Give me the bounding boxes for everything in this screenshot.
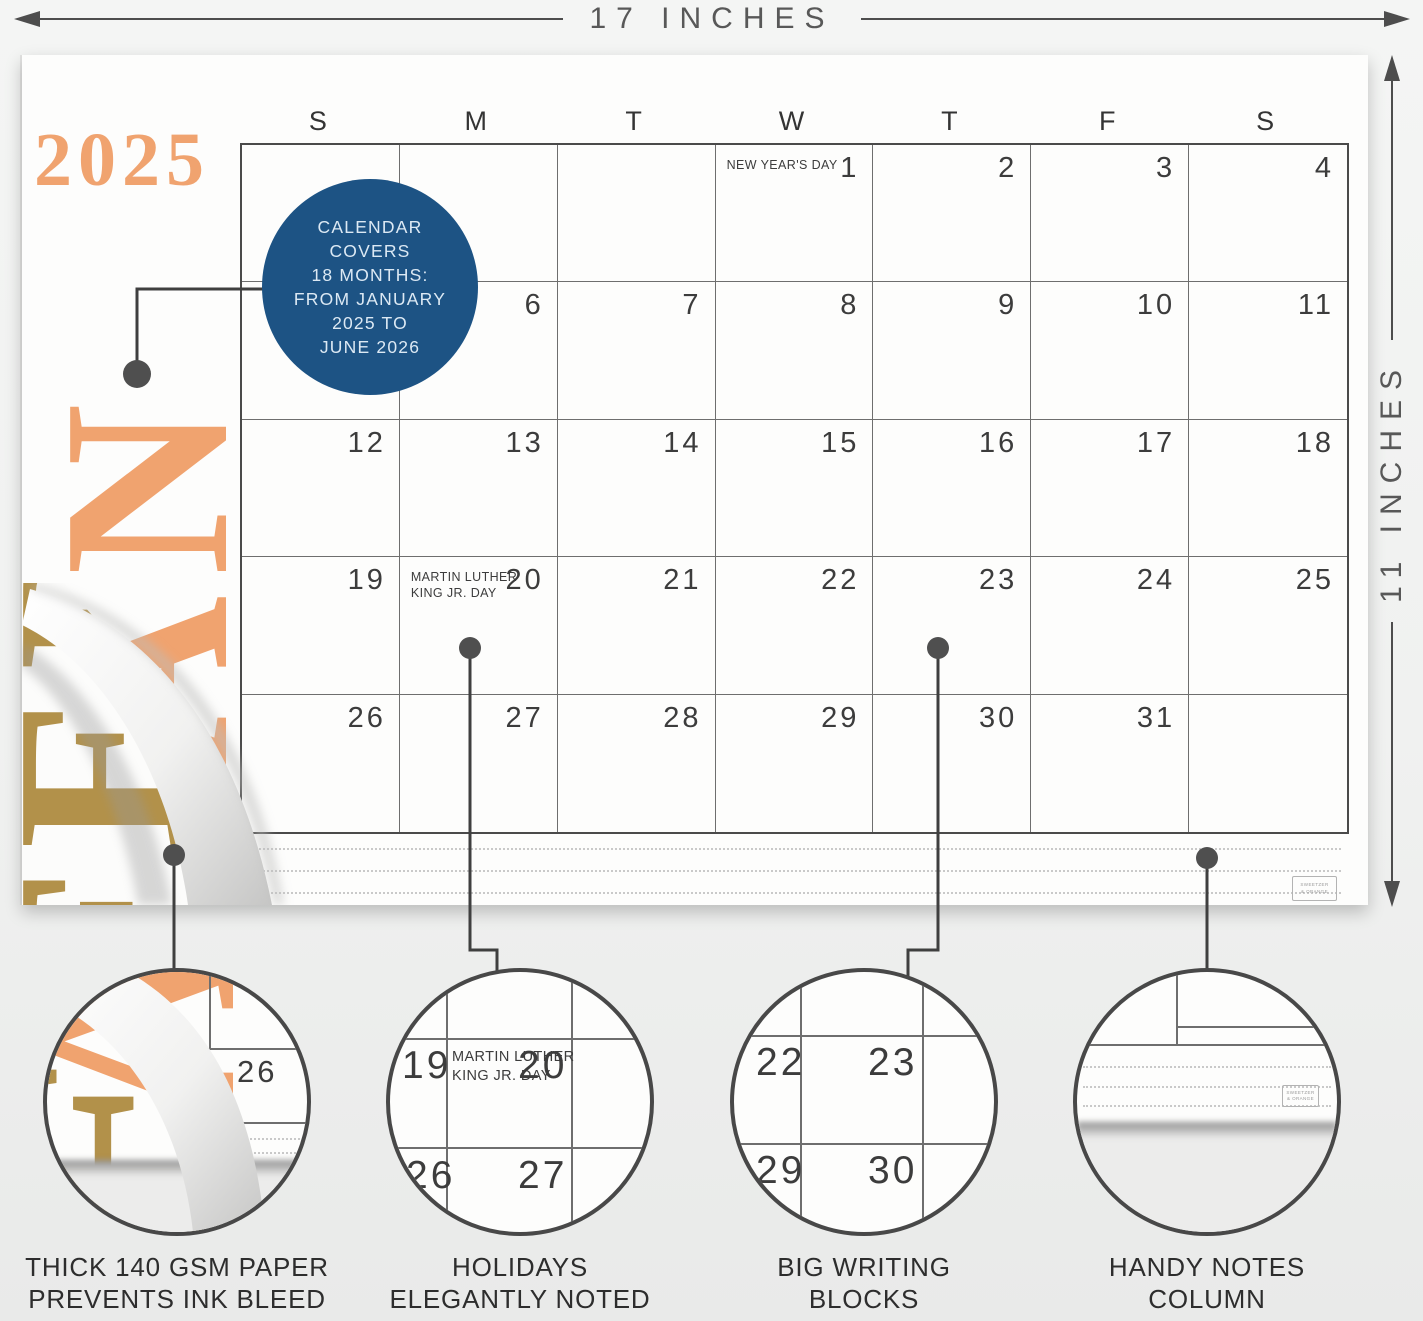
dimension-line <box>1391 622 1394 881</box>
date-number: 14 <box>663 427 701 460</box>
weekday-header: S <box>1187 99 1345 141</box>
day-cell: MARTIN LUTHER KING JR. DAY20 <box>400 557 558 694</box>
date-number: 30 <box>979 702 1017 735</box>
inset-writing-blocks-closeup: 22 23 29 30 <box>730 968 998 1236</box>
day-cell: 14 <box>558 420 716 557</box>
day-cell: 15 <box>716 420 874 557</box>
calendar-page: 2025 SMTWTFS NEW YEAR'S DAY1234567891011… <box>22 55 1368 905</box>
date-number: 1 <box>840 152 859 185</box>
dimension-line <box>861 18 1384 21</box>
page-curl <box>47 972 307 1232</box>
grid-line <box>1077 1044 1337 1046</box>
day-cell: 27 <box>400 695 558 832</box>
notes-rule-line <box>244 870 1341 872</box>
date-number: 22 <box>756 1041 805 1085</box>
brand-logo-text: & ORANGE <box>1301 889 1328 895</box>
day-cell: 11 <box>1189 282 1347 419</box>
grid-line <box>571 972 573 1232</box>
caption-line: COLUMN <box>1037 1284 1377 1316</box>
day-cell: 23 <box>873 557 1031 694</box>
height-dimension-label: 11 INCHES <box>1375 360 1409 603</box>
arrow-right-icon <box>1384 11 1410 27</box>
weekday-header: W <box>714 99 872 141</box>
date-number: 20 <box>505 564 543 597</box>
weekday-header: F <box>1029 99 1187 141</box>
day-cell: 22 <box>716 557 874 694</box>
day-cell: 13 <box>400 420 558 557</box>
grid-line <box>1325 1026 1327 1044</box>
caption-line: BLOCKS <box>694 1284 1034 1316</box>
date-number: 26 <box>406 1154 455 1198</box>
date-number: 23 <box>868 1041 917 1085</box>
desk-surface <box>1077 1132 1337 1232</box>
grid-line <box>390 1147 650 1149</box>
date-number: 6 <box>525 289 544 322</box>
date-number: 11 <box>1298 289 1334 322</box>
date-number: 29 <box>756 1149 805 1193</box>
callout-text-line: 2025 TO <box>332 311 408 335</box>
date-number: 20 <box>518 1044 567 1088</box>
date-number: 31 <box>1137 702 1175 735</box>
day-cell: 17 <box>1031 420 1189 557</box>
caption-line: HOLIDAYS <box>350 1252 690 1284</box>
date-number: 28 <box>663 702 701 735</box>
date-number: 13 <box>505 427 543 460</box>
weekday-header: T <box>556 99 714 141</box>
day-cell: 18 <box>1189 420 1347 557</box>
weekday-header: T <box>871 99 1029 141</box>
callout-text-line: FROM JANUARY <box>294 287 446 311</box>
date-number: 3 <box>1156 152 1175 185</box>
day-cell: 9 <box>873 282 1031 419</box>
caption-line: ELEGANTLY NOTED <box>350 1284 690 1316</box>
grid-line <box>1176 1026 1325 1028</box>
holiday-label: NEW YEAR'S DAY <box>727 157 838 173</box>
day-cell: 29 <box>716 695 874 832</box>
arrow-up-icon <box>1384 55 1400 81</box>
date-number: 18 <box>1296 427 1334 460</box>
height-dimension: 11 INCHES <box>1372 55 1412 907</box>
caption-line: BIG WRITING <box>694 1252 1034 1284</box>
width-dimension-label: 17 INCHES <box>589 2 834 36</box>
year-label: 2025 <box>34 117 210 204</box>
date-number: 19 <box>348 564 386 597</box>
date-number: 4 <box>1315 152 1334 185</box>
weekday-header: S <box>240 99 398 141</box>
inset-caption: BIG WRITING BLOCKS <box>694 1252 1034 1315</box>
brand-logo-text: & ORANGE <box>1287 1096 1314 1102</box>
date-number: 2 <box>998 152 1017 185</box>
day-cell: 8 <box>716 282 874 419</box>
arrow-down-icon <box>1384 881 1400 907</box>
inset-holidays-closeup: 19 MARTIN LUTHER KING JR. DAY 20 26 27 <box>386 968 654 1236</box>
inset-paper-closeup: A E 26 <box>43 968 311 1236</box>
date-number: 22 <box>821 564 859 597</box>
callout-text-line: COVERS <box>329 239 410 263</box>
dimension-line <box>1391 81 1394 340</box>
day-cell: 21 <box>558 557 716 694</box>
day-cell: 4 <box>1189 145 1347 282</box>
page-curl <box>22 583 332 905</box>
grid-line <box>800 972 802 1232</box>
date-number: 29 <box>821 702 859 735</box>
day-cell: 3 <box>1031 145 1189 282</box>
callout-text-line: JUNE 2026 <box>320 335 420 359</box>
date-number: 8 <box>840 289 859 322</box>
day-cell: 16 <box>873 420 1031 557</box>
brand-logo: SWEETZER & ORANGE <box>1282 1085 1319 1107</box>
date-number: 12 <box>348 427 386 460</box>
width-dimension: 17 INCHES <box>14 0 1410 38</box>
day-cell: 30 <box>873 695 1031 832</box>
date-number: 30 <box>868 1149 917 1193</box>
notes-section: SWEETZER & ORANGE <box>240 830 1345 905</box>
page-shadow <box>1077 1122 1337 1137</box>
date-number: 23 <box>979 564 1017 597</box>
date-number: 9 <box>998 289 1017 322</box>
grid-line <box>734 1143 994 1145</box>
holiday-label: MARTIN LUTHER KING JR. DAY <box>411 569 517 602</box>
inset-notes-closeup: SWEETZER & ORANGE <box>1073 968 1341 1236</box>
weekday-header: M <box>398 99 556 141</box>
info-callout-bubble: CALENDAR COVERS 18 MONTHS: FROM JANUARY … <box>262 179 478 395</box>
day-cell: 24 <box>1031 557 1189 694</box>
day-cell: NEW YEAR'S DAY1 <box>716 145 874 282</box>
dimension-line <box>40 18 563 21</box>
date-number: 17 <box>1137 427 1175 460</box>
date-number: 16 <box>979 427 1017 460</box>
date-number: 27 <box>505 702 543 735</box>
day-cell <box>558 145 716 282</box>
brand-logo: SWEETZER & ORANGE <box>1292 876 1337 901</box>
notes-rule-line <box>1083 1066 1331 1068</box>
day-cell: 31 <box>1031 695 1189 832</box>
date-number: 27 <box>518 1154 567 1198</box>
date-number: 26 <box>348 702 386 735</box>
grid-line <box>922 972 924 1232</box>
weekday-header-row: SMTWTFS <box>240 99 1345 141</box>
date-number: 21 <box>663 564 701 597</box>
caption-line: HANDY NOTES <box>1037 1252 1377 1284</box>
caption-line: PREVENTS INK BLEED <box>7 1284 347 1316</box>
grid-line <box>734 1035 994 1037</box>
notes-rule-line <box>244 892 1341 894</box>
date-number: 25 <box>1296 564 1334 597</box>
date-number: 7 <box>682 289 701 322</box>
notes-rule-line <box>244 848 1341 850</box>
inset-caption: THICK 140 GSM PAPER PREVENTS INK BLEED <box>7 1252 347 1315</box>
date-number: 15 <box>821 427 859 460</box>
grid-line <box>1176 972 1178 1044</box>
day-cell: 10 <box>1031 282 1189 419</box>
day-cell: 2 <box>873 145 1031 282</box>
day-cell: 28 <box>558 695 716 832</box>
day-cell <box>1189 695 1347 832</box>
date-number: 24 <box>1137 564 1175 597</box>
day-cell: 7 <box>558 282 716 419</box>
inset-caption: HANDY NOTES COLUMN <box>1037 1252 1377 1315</box>
arrow-left-icon <box>14 11 40 27</box>
caption-line: THICK 140 GSM PAPER <box>7 1252 347 1284</box>
callout-text-line: 18 MONTHS: <box>311 263 428 287</box>
date-number: 19 <box>402 1044 451 1088</box>
grid-line <box>390 1038 650 1040</box>
product-image: 17 INCHES 11 INCHES 2025 SMTWTFS NEW YEA… <box>0 0 1423 1321</box>
day-cell: 25 <box>1189 557 1347 694</box>
callout-text-line: CALENDAR <box>318 215 423 239</box>
inset-caption: HOLIDAYS ELEGANTLY NOTED <box>350 1252 690 1315</box>
date-number: 10 <box>1137 289 1175 322</box>
